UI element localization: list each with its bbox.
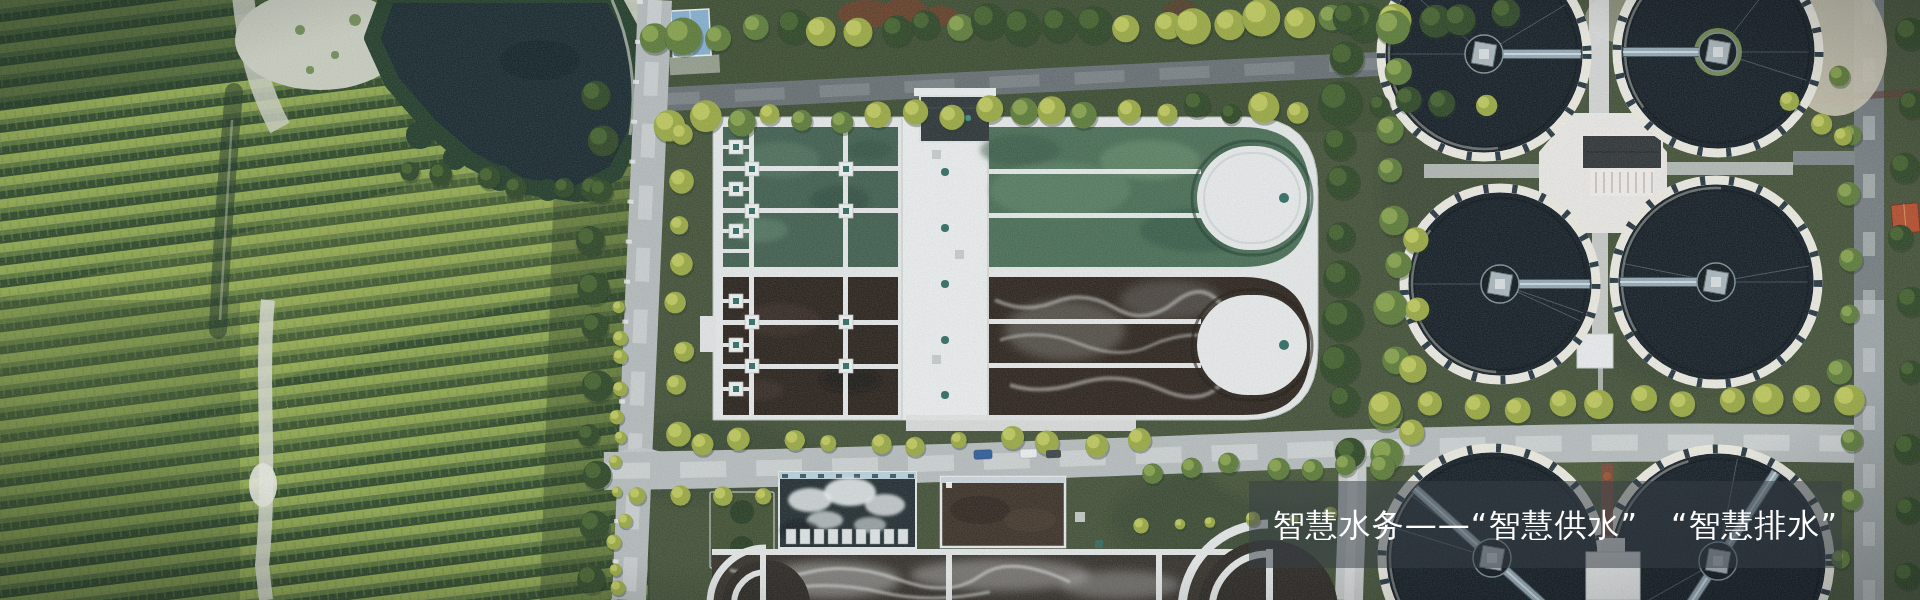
- caption-text: 智慧水务——“智慧供水” “智慧排水”: [1273, 509, 1838, 541]
- hero-banner: 智慧水务——“智慧供水” “智慧排水”: [0, 0, 1920, 600]
- caption-overlay: 智慧水务——“智慧供水” “智慧排水”: [1249, 481, 1842, 568]
